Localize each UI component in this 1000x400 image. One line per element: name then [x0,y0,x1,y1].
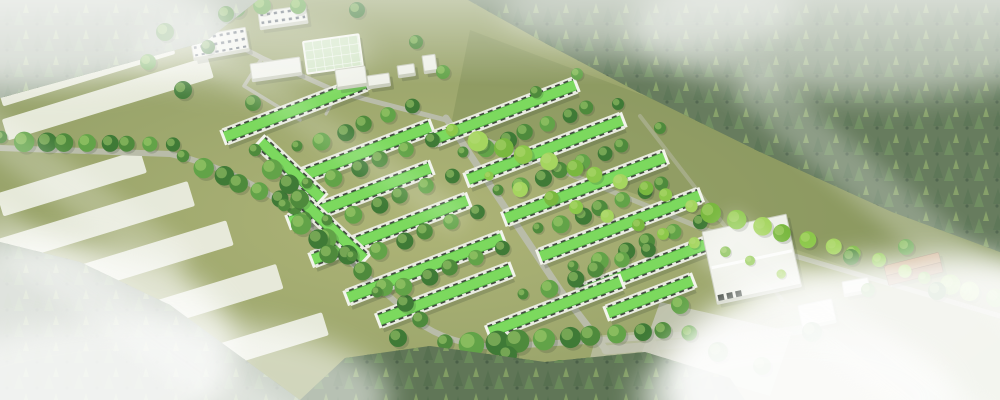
tree-highlight [635,325,645,335]
tree-highlight [686,201,693,208]
tree-highlight [346,207,356,217]
tree-highlight [79,135,89,145]
tree-highlight [702,204,713,215]
tree-highlight [640,234,649,243]
tree-highlight [469,251,478,260]
tree-highlight [536,171,545,180]
tree-highlight [418,224,427,233]
loading-door [717,294,724,301]
tree-highlight [347,251,353,257]
tree-highlight [533,223,539,229]
tree-highlight [469,133,480,144]
tree-highlight [518,289,524,295]
tree-highlight [103,136,112,145]
tree-highlight [390,330,400,340]
tree-highlight [167,138,175,146]
tree-highlight [321,246,331,256]
tree-highlight [515,147,525,157]
tree-highlight [292,191,302,201]
tree-highlight [568,261,574,267]
tree-highlight [564,109,572,117]
tree-highlight [322,215,328,221]
tree-highlight [541,117,550,126]
tree-highlight [508,331,521,344]
tree-highlight [518,125,527,134]
tree-highlight [461,334,475,348]
tree-highlight [355,263,365,273]
tree-highlight [535,330,547,342]
tree-highlight [545,192,553,200]
tree-highlight [656,323,665,332]
tree-highlight [231,176,241,186]
haze-layer [0,0,1000,85]
tree-highlight [178,151,185,158]
tree-highlight [615,140,623,148]
tree-highlight [660,189,667,196]
tree-highlight [689,238,695,244]
tree-highlight [602,210,609,217]
tree-highlight [120,137,129,146]
site-rendering-svg [0,0,1000,400]
tree-highlight [582,327,593,338]
tree-highlight [613,99,620,106]
tree-highlight [143,138,151,146]
tree-highlight [633,220,640,227]
tree-highlight [658,229,665,236]
tree-highlight [485,172,490,177]
tree-highlight [493,185,499,191]
top-haze [0,0,1000,85]
tree-highlight [302,178,308,184]
tree-highlight [599,147,607,155]
tree-highlight [471,206,479,214]
tree-highlight [438,335,447,344]
tree-highlight [396,279,406,289]
tree-highlight [406,100,414,108]
tree-highlight [580,102,588,110]
tree-highlight [542,281,552,291]
tree-highlight [292,216,303,227]
tree-highlight [250,145,257,152]
tree-highlight [694,216,702,224]
tree-highlight [615,253,624,262]
tree-highlight [568,161,577,170]
tree-highlight [619,244,628,253]
tree-highlight [496,140,507,151]
tree-highlight [614,175,622,183]
tree-highlight [252,184,262,194]
tree-highlight [569,272,578,281]
tree-highlight [774,225,784,235]
tree-highlight [514,183,522,191]
tree-highlight [326,170,336,180]
tree-highlight [56,135,66,145]
tree-highlight [844,250,853,259]
tree-highlight [399,143,408,152]
tree-highlight [655,123,662,130]
tree-highlight [372,287,378,293]
tree-highlight [755,218,765,228]
tree-highlight [279,200,286,207]
tree-highlight [381,108,390,117]
tree-highlight [589,262,598,271]
tree-highlight [496,242,504,250]
tree-highlight [373,198,382,207]
tree-highlight [531,87,538,94]
tree-highlight [616,193,625,202]
tree-highlight [310,231,321,242]
tree-highlight [561,329,573,341]
tree-highlight [458,147,464,153]
aerial-site-rendering [0,0,1000,400]
tree-highlight [357,117,366,126]
tree-highlight [642,244,650,252]
tree-highlight [281,176,292,187]
tree-highlight [570,201,578,209]
tree-highlight [446,170,454,178]
tree-highlight [609,326,619,336]
tree-highlight [801,233,810,242]
loading-door [726,292,733,299]
tree-highlight [292,141,298,147]
tree-highlight [593,201,602,210]
tree-highlight [827,240,836,249]
tree-highlight [413,313,422,322]
tree-highlight [672,297,682,307]
tree-highlight [500,347,510,357]
tree-highlight [640,182,648,190]
tree-highlight [426,134,434,142]
tree-highlight [398,234,407,243]
tree-highlight [553,217,563,227]
tree-highlight [423,270,432,279]
tree-highlight [216,168,227,179]
tree-highlight [443,260,452,269]
tree-highlight [447,125,454,132]
tree-highlight [195,159,206,170]
tree-highlight [371,243,381,253]
tree-highlight [588,168,597,177]
tree-highlight [263,161,274,172]
tree-highlight [542,154,552,164]
tree-highlight [273,192,282,201]
tree-highlight [487,332,500,345]
tree-highlight [655,178,663,186]
